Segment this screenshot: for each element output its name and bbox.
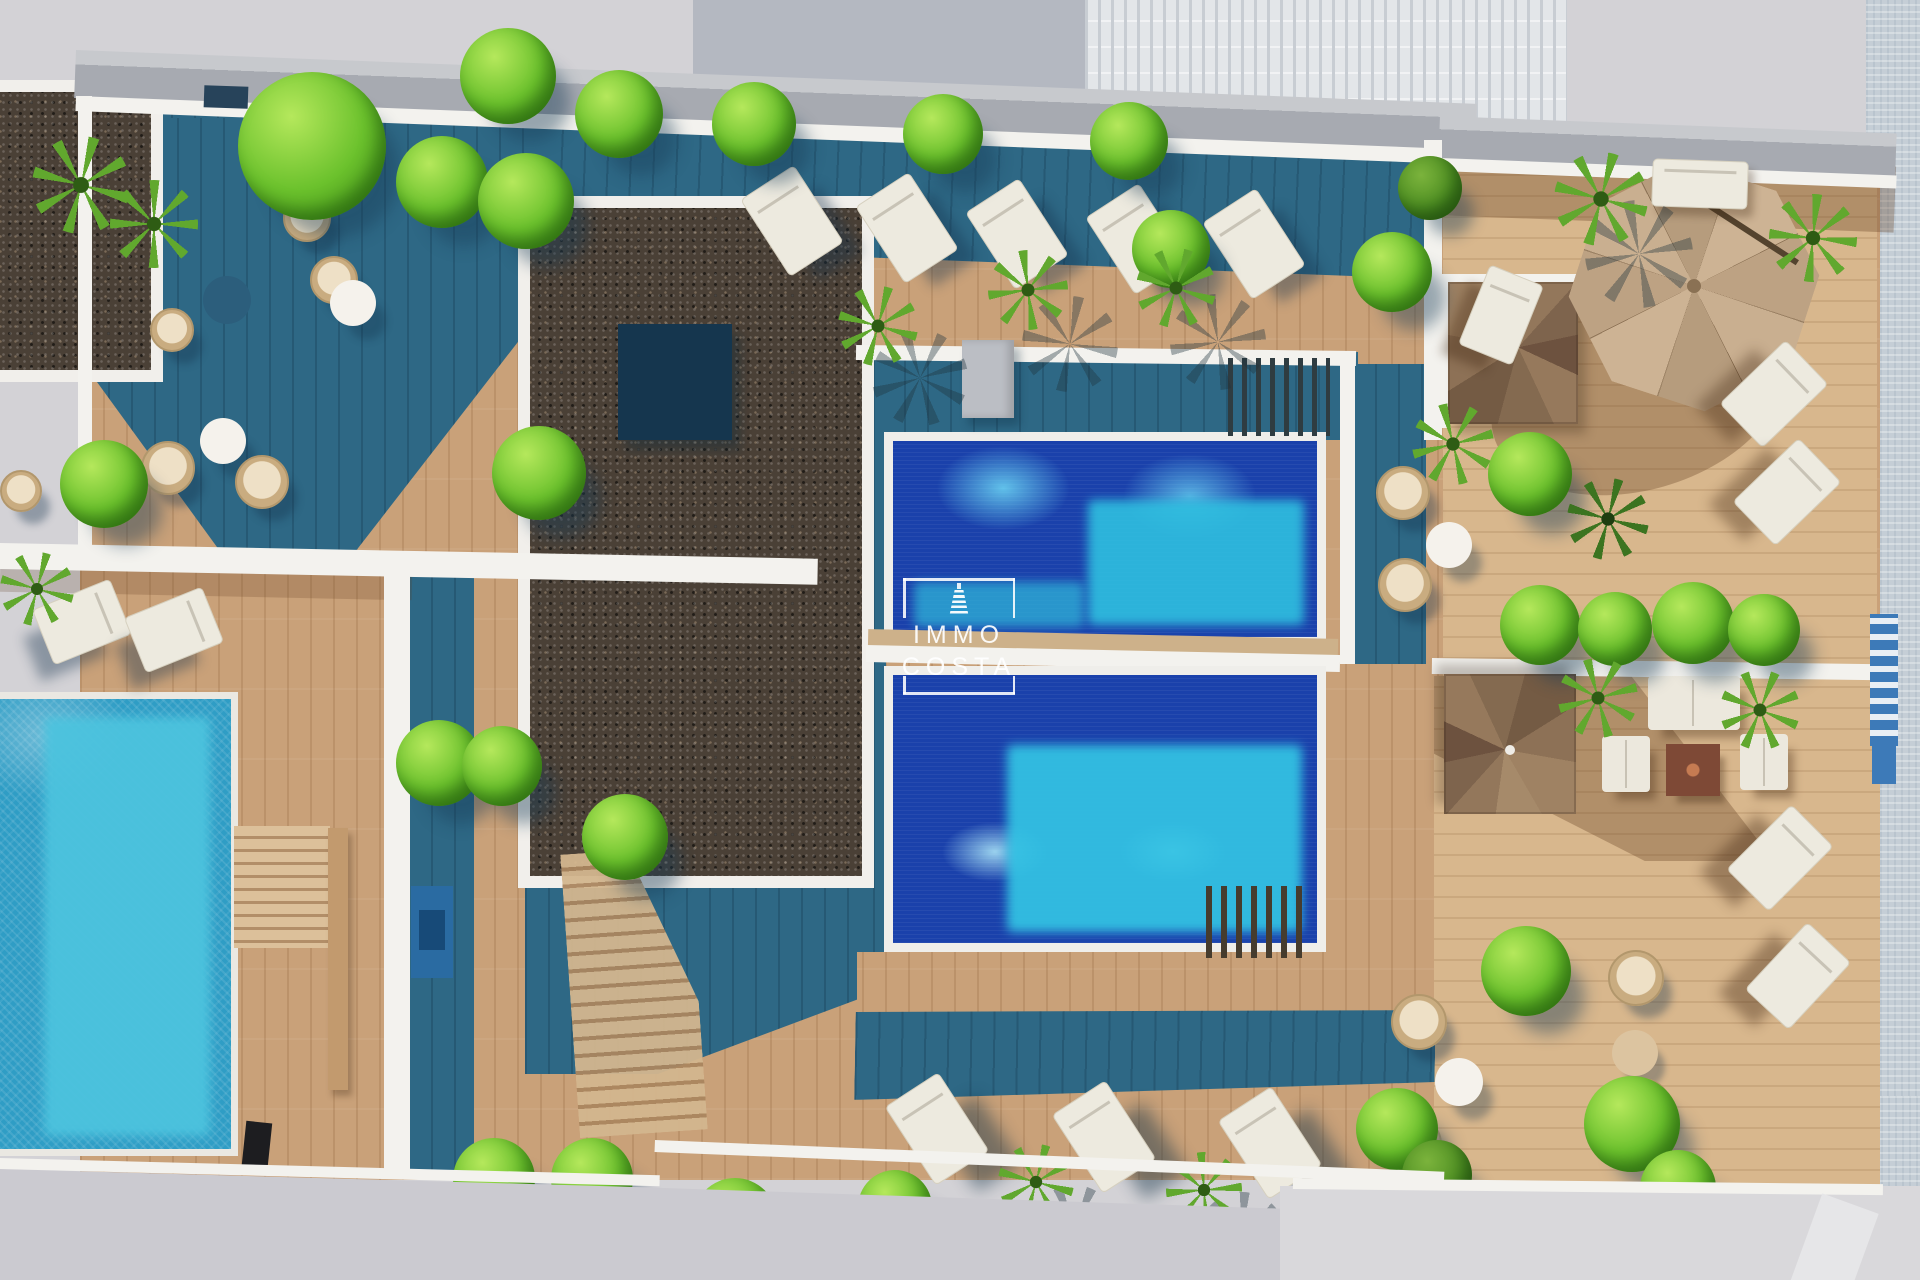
bush <box>1500 585 1580 665</box>
pool-inner-light-area <box>44 717 210 1136</box>
pool-shallow-area <box>1088 500 1304 625</box>
bush <box>712 82 796 166</box>
small-dark-bench <box>242 1121 272 1167</box>
watermark-frame-left-upper <box>903 578 906 618</box>
spiral-staircase-lower <box>1444 674 1576 814</box>
bush <box>478 153 574 249</box>
pool-tech-box <box>411 886 453 978</box>
watermark-brand-line2: COSTA <box>883 652 1035 682</box>
bush <box>903 94 983 174</box>
wicker-chair <box>1608 950 1664 1006</box>
roof-access-box <box>962 340 1014 418</box>
bush <box>1728 594 1800 666</box>
bush <box>582 794 668 880</box>
wicker-chair <box>235 455 289 509</box>
round-table-white <box>1435 1058 1483 1106</box>
blue-striped-awning <box>1870 614 1898 746</box>
bush <box>575 70 663 158</box>
round-table-white <box>200 418 246 464</box>
bush <box>396 136 488 228</box>
lighthouse-tower-icon <box>948 590 970 614</box>
wicker-chair <box>0 470 42 512</box>
gravel-roof-patch-center <box>518 196 874 888</box>
bush <box>1488 432 1572 516</box>
left-terrace-vertical-wall <box>384 558 410 1172</box>
bush <box>1578 592 1652 666</box>
ac-unit-dark-box <box>618 324 732 440</box>
bush-large <box>238 72 386 220</box>
watermark-brand-line1: IMMO <box>883 620 1035 650</box>
watermark: IMMO COSTA <box>903 578 1015 696</box>
bench-on-parapet <box>204 85 249 109</box>
palm-plant <box>838 286 918 366</box>
private-pool-left-terrace <box>0 692 238 1156</box>
bush <box>462 726 542 806</box>
bush <box>1352 232 1432 312</box>
blue-awning-tab <box>1872 744 1896 784</box>
shadow-left-terrace-walkway <box>408 558 474 1170</box>
stairs-left-terrace <box>234 826 330 948</box>
pool-railing-lower <box>1206 886 1310 958</box>
bush <box>60 440 148 528</box>
wall-right-of-pools <box>1340 352 1355 664</box>
rooftop-aerial-render: IMMO COSTA <box>0 0 1920 1280</box>
bush <box>1481 926 1571 1016</box>
pool-tech-grate <box>419 910 445 950</box>
palm-plant <box>1554 152 1648 246</box>
round-table-shaded <box>203 276 251 324</box>
watermark-frame-right-upper <box>1013 578 1016 618</box>
wicker-chair <box>150 308 194 352</box>
lighthouse-tower-icon-knob <box>957 583 961 589</box>
watermark-frame-top <box>903 578 1015 581</box>
bush <box>1652 582 1734 664</box>
bush-dark <box>1398 156 1462 220</box>
round-table-white <box>330 280 376 326</box>
wicker-chair <box>1378 558 1432 612</box>
wicker-chair <box>1376 466 1430 520</box>
watermark-frame-bottom <box>903 692 1015 695</box>
palm-plant <box>0 552 74 626</box>
wicker-chair <box>141 441 195 495</box>
wicker-chair <box>1391 994 1447 1050</box>
coffee-table <box>1666 744 1720 796</box>
stairs-stringer-plank <box>328 828 348 1090</box>
round-table-tan <box>1612 1030 1658 1076</box>
outdoor-armchair <box>1602 736 1650 792</box>
bush <box>1090 102 1168 180</box>
daybed <box>1651 158 1749 209</box>
bush <box>492 426 586 520</box>
bush <box>460 28 556 124</box>
palm-plant-dark <box>1567 478 1649 560</box>
round-table-white <box>1426 522 1472 568</box>
